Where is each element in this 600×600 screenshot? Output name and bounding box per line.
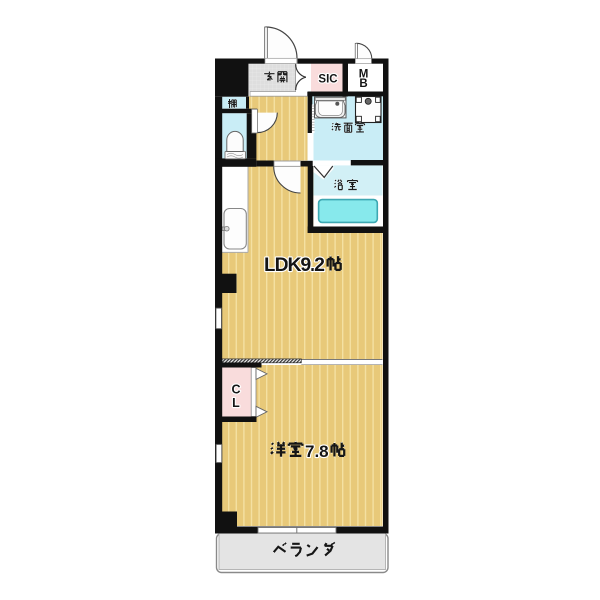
svg-text:B: B [359, 78, 367, 90]
svg-text:LDK9.2: LDK9.2 [264, 254, 325, 276]
svg-text:7.8: 7.8 [305, 442, 329, 461]
svg-text:L: L [232, 396, 240, 410]
svg-text:SIC: SIC [318, 74, 337, 86]
svg-text:C: C [231, 383, 240, 397]
